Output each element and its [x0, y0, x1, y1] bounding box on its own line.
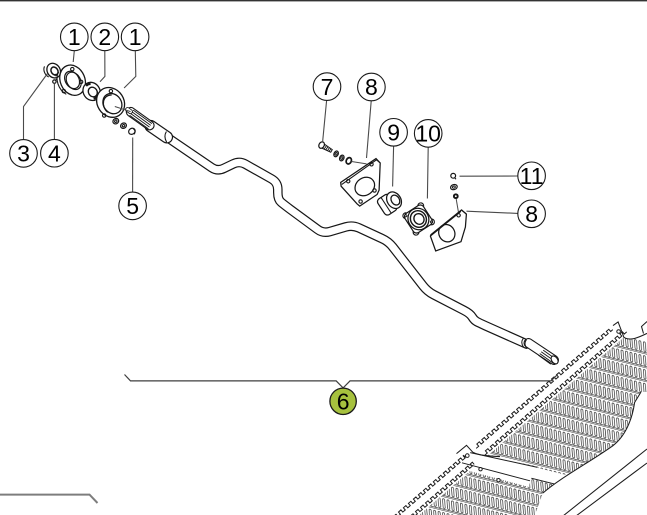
- svg-text:4: 4: [48, 140, 61, 166]
- svg-text:7: 7: [321, 74, 334, 100]
- svg-text:5: 5: [126, 193, 139, 219]
- svg-text:1: 1: [68, 24, 81, 50]
- svg-text:8: 8: [365, 74, 378, 100]
- svg-text:1: 1: [129, 24, 142, 50]
- svg-text:6: 6: [337, 389, 350, 415]
- svg-text:2: 2: [98, 24, 111, 50]
- svg-text:10: 10: [415, 121, 441, 147]
- svg-text:11: 11: [520, 163, 544, 189]
- svg-text:3: 3: [17, 141, 30, 167]
- svg-text:8: 8: [525, 201, 538, 227]
- svg-text:9: 9: [387, 120, 400, 146]
